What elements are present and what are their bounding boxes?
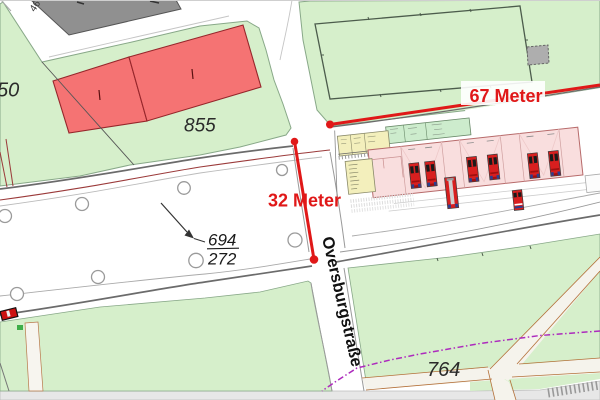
svg-text:694: 694 [208, 231, 236, 250]
svg-text:272: 272 [207, 250, 237, 269]
svg-text:32 Meter: 32 Meter [268, 191, 341, 211]
svg-text:764: 764 [427, 359, 460, 381]
svg-text:50: 50 [0, 80, 19, 102]
svg-text:67 Meter: 67 Meter [470, 86, 543, 106]
svg-text:855: 855 [184, 116, 216, 137]
